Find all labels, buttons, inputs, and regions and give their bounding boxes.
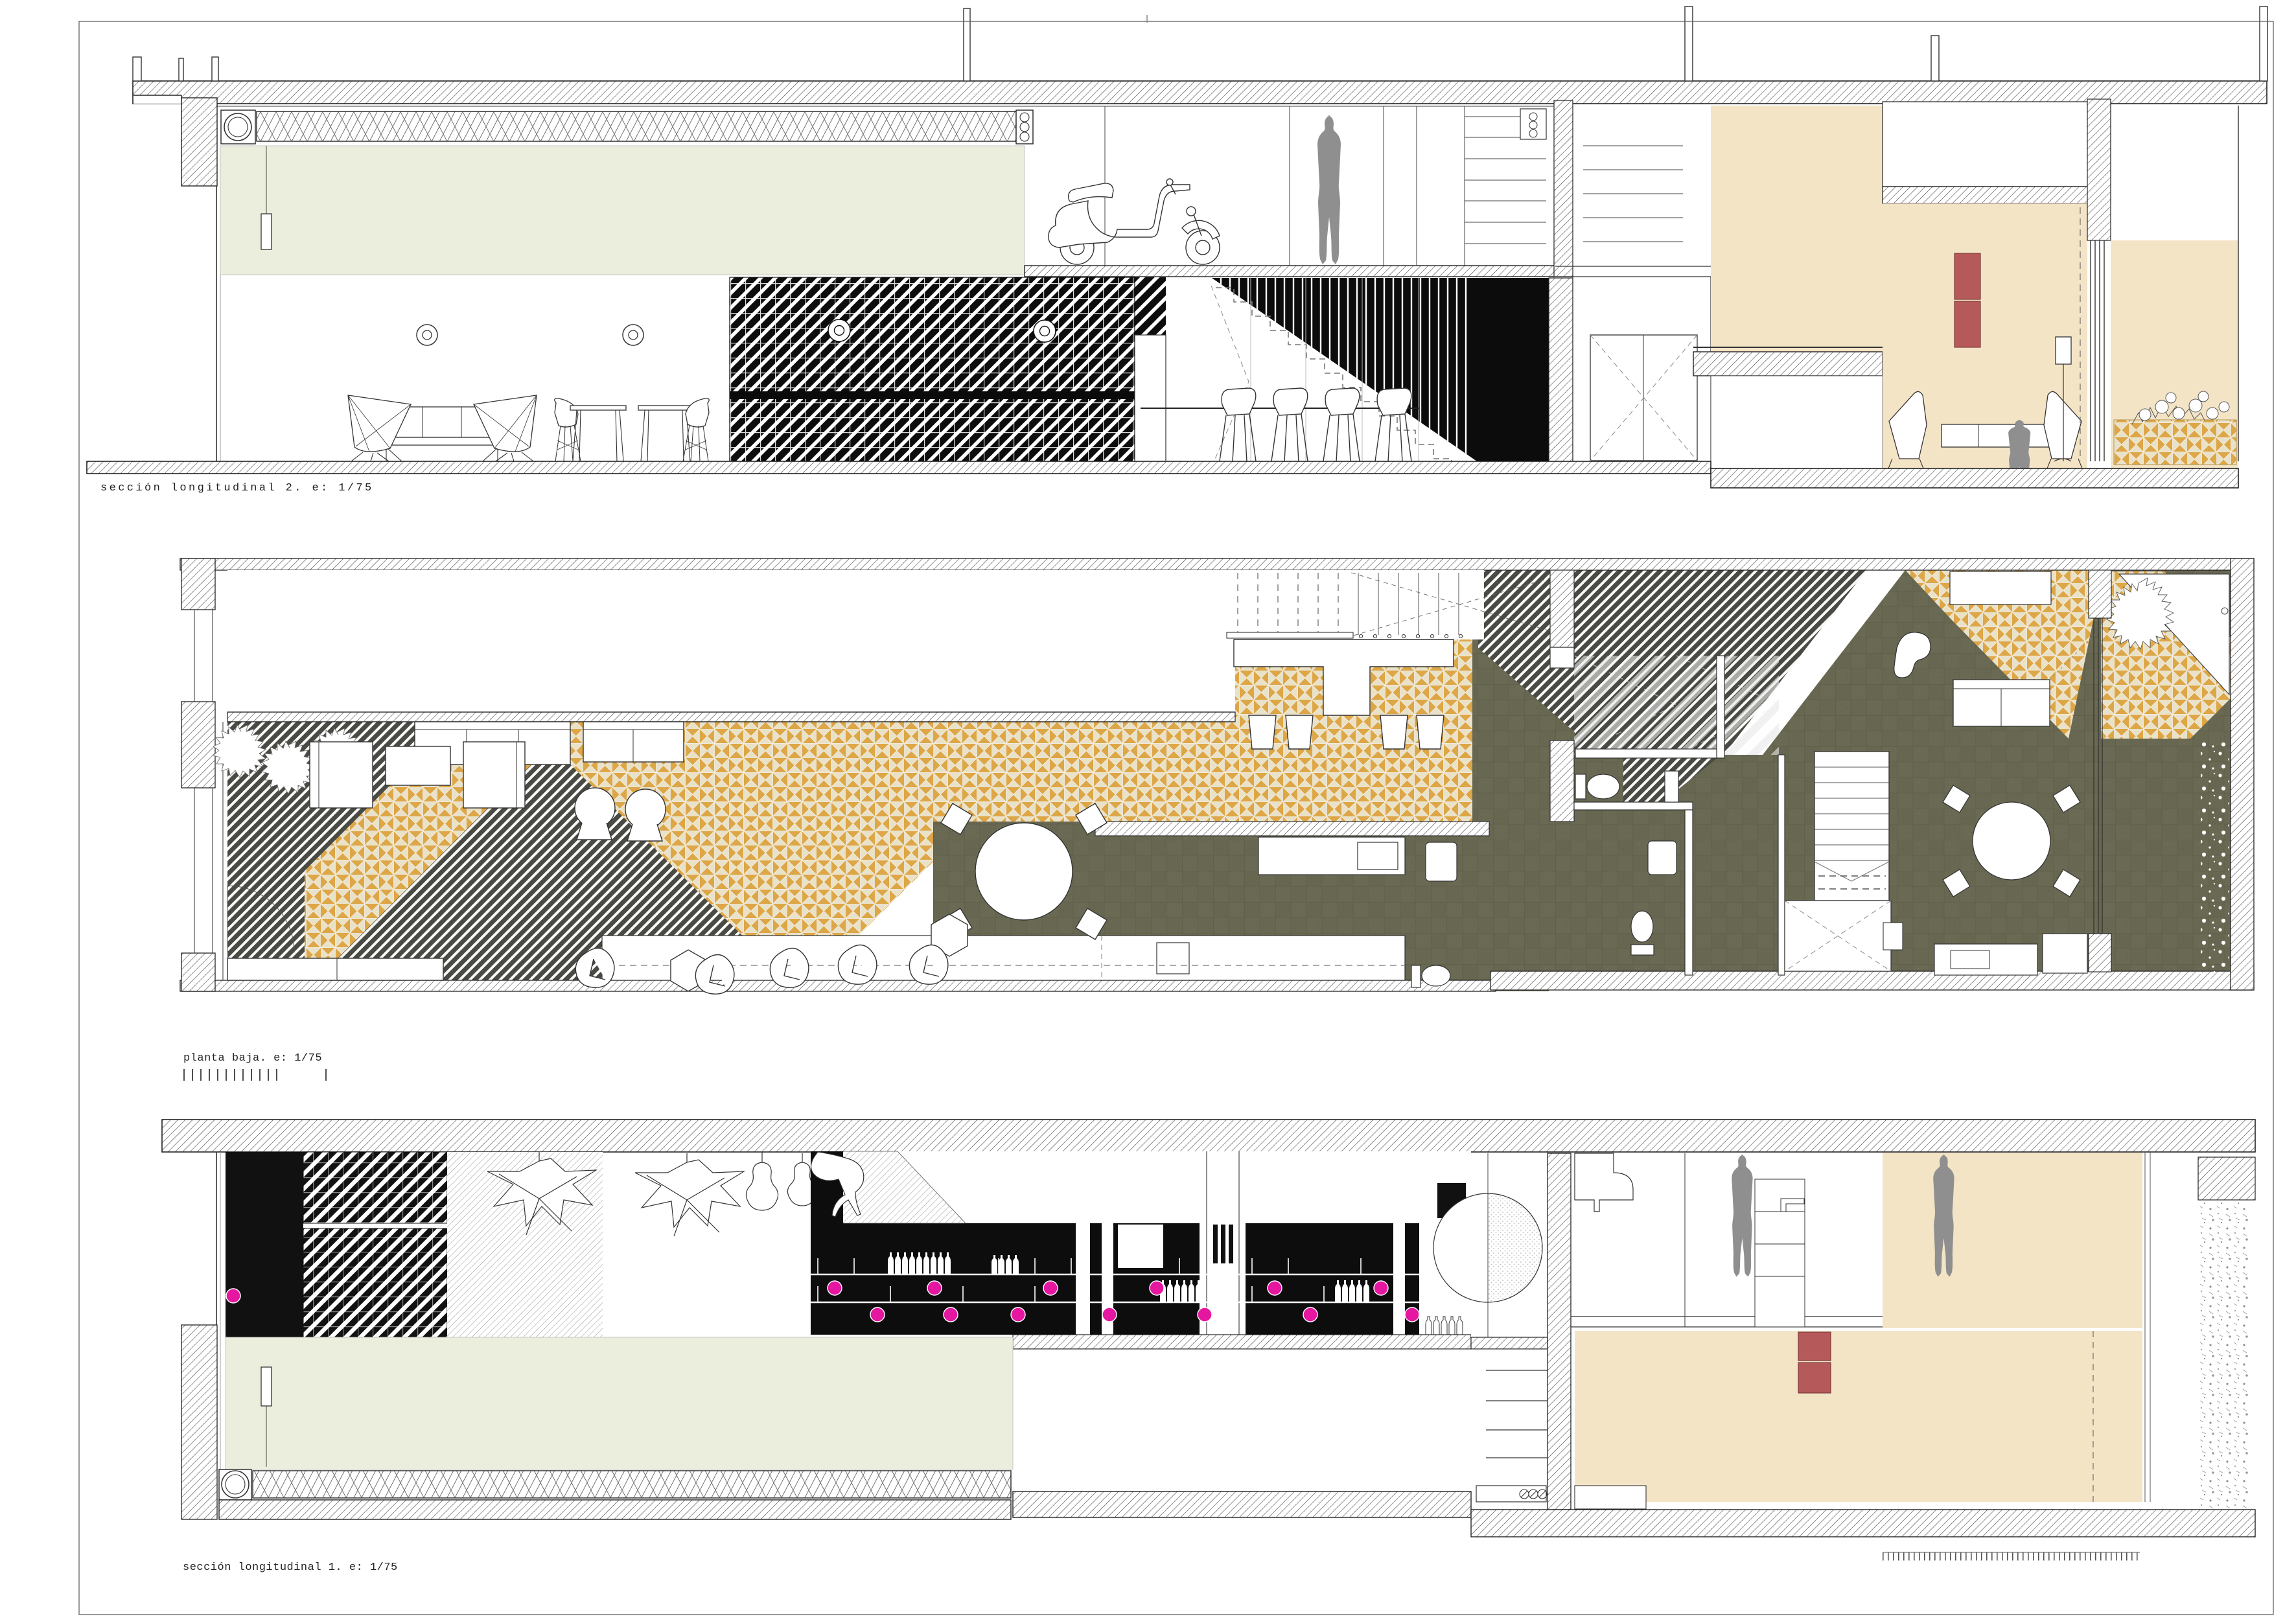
svg-text:sección longitudinal 1. e: 1/7: sección longitudinal 1. e: 1/75 <box>183 1561 398 1574</box>
svg-text:planta baja. e: 1/75: planta baja. e: 1/75 <box>183 1052 322 1065</box>
svg-text:sección longitudinal 2. e: 1/7: sección longitudinal 2. e: 1/75 <box>100 482 374 494</box>
